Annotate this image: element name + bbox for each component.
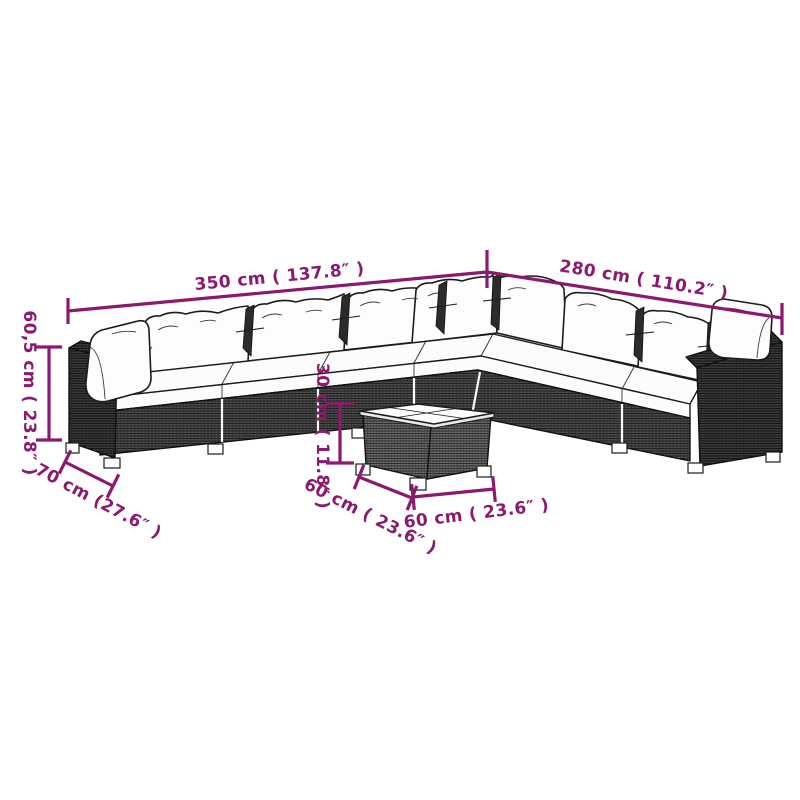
diagram-canvas: 350 cm ( 137.8″ ) 280 cm ( 110.2″ ) 60,5… bbox=[0, 0, 800, 800]
dimension-label-sofa-depth: 70 cm (27.6″ ) bbox=[32, 460, 165, 543]
pillow-left-arm bbox=[86, 321, 151, 402]
sofa-foot bbox=[612, 443, 627, 453]
furniture-dimension-diagram: 350 cm ( 137.8″ ) 280 cm ( 110.2″ ) 60,5… bbox=[0, 0, 800, 800]
coffee-table bbox=[356, 404, 494, 490]
dimension-sofa-height: 60,5 cm ( 23.8″ ) bbox=[19, 310, 62, 475]
dimension-label-table-side-right: 60 cm ( 23.6″ ) bbox=[403, 495, 551, 533]
sofa-foot bbox=[66, 443, 79, 453]
sofa-foot bbox=[766, 452, 780, 462]
table-foot bbox=[477, 466, 491, 477]
sofa-foot bbox=[208, 444, 223, 454]
dimension-sofa-depth: 70 cm (27.6″ ) bbox=[32, 450, 165, 543]
pillow bbox=[412, 275, 497, 343]
dimension-label-sofa-height: 60,5 cm ( 23.8″ ) bbox=[19, 310, 39, 475]
sofa-foot bbox=[104, 458, 120, 468]
sofa-foot bbox=[688, 463, 703, 473]
